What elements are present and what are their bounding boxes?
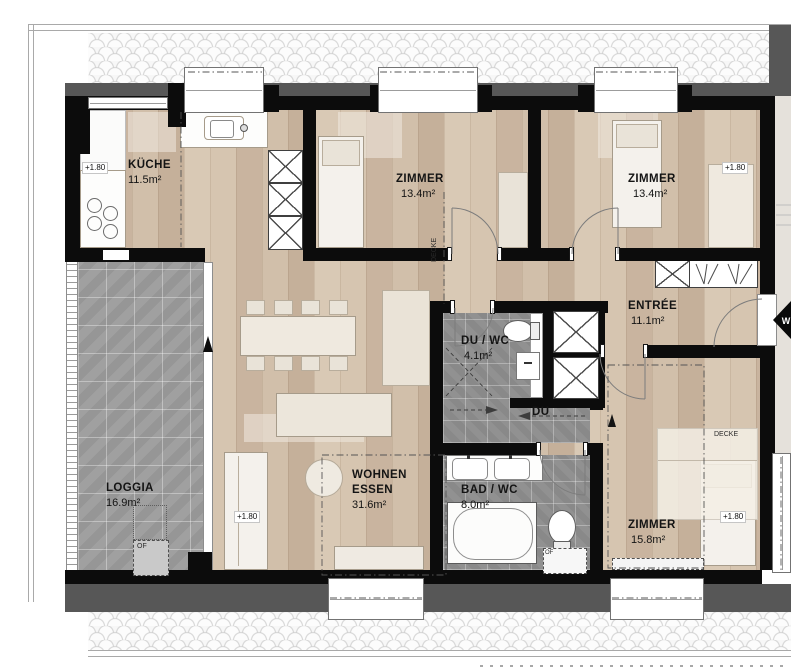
door-post (643, 344, 648, 358)
bath-sink (494, 458, 530, 480)
ref-line-top-2 (28, 30, 791, 31)
bed-pillow (322, 140, 360, 166)
cooktop-burner (87, 198, 102, 213)
room-label-kueche: KÜCHE 11.5m² (128, 158, 171, 187)
wall (645, 345, 762, 358)
sideboard (276, 393, 392, 437)
wall (500, 248, 572, 261)
dining-chair (274, 356, 293, 371)
cabinet (382, 290, 430, 386)
kitchen-faucet (240, 124, 248, 132)
kitchen-sink-basin (210, 120, 234, 138)
toilet (548, 510, 576, 544)
pass-through-opening (103, 250, 129, 260)
room-name: DU (532, 405, 549, 420)
door-post (615, 247, 620, 261)
wall-pier (476, 85, 492, 112)
room-area: 15.8m² (628, 533, 676, 547)
room-label-zimmer-top-right: ZIMMER 13.4m² (628, 172, 676, 201)
door-post (569, 247, 574, 261)
entree-wardrobe-shelf (655, 260, 690, 288)
room-area: 13.4m² (396, 187, 444, 201)
ventilation-shaft (553, 311, 599, 353)
window (184, 67, 264, 113)
room-area: 31.6m² (352, 498, 407, 512)
loggia-railing (66, 256, 78, 578)
window (328, 578, 424, 620)
kitchen-tall-cabinet (268, 183, 303, 216)
door-post (450, 300, 455, 314)
wall (303, 248, 450, 261)
cooktop-burner (87, 216, 102, 231)
door-post (447, 247, 452, 261)
bath-sink (452, 458, 488, 480)
tv-board (334, 546, 424, 570)
wardrobe (498, 172, 528, 248)
room-label-wohnen-essen: WOHNEN ESSEN 31.6m² (352, 468, 407, 512)
decke-label-vertical: DECKE (431, 228, 438, 262)
level-marker: +1.80 (720, 511, 746, 523)
level-marker: +1.80 (722, 162, 748, 174)
wall (443, 443, 540, 455)
room-name: ESSEN (352, 483, 407, 498)
floor-plan: W KÜCHE 11.5m² ZIMMER 13.4m² ZIMMER 13.4… (0, 0, 791, 670)
ref-line-bottom-1 (88, 650, 791, 651)
dining-chair (246, 356, 265, 371)
ref-line-bottom-2 (88, 656, 791, 657)
ventilation-shaft (553, 357, 599, 399)
bathtub-inner (453, 508, 533, 560)
wall-loggia-top (65, 248, 205, 262)
of-label: OF (137, 543, 147, 550)
room-name: ZIMMER (628, 172, 676, 187)
dining-chair (301, 356, 320, 371)
room-area: 13.4m² (628, 187, 676, 201)
wall (303, 96, 316, 261)
wall (65, 110, 80, 256)
room-name: KÜCHE (128, 158, 171, 173)
dining-chair (246, 300, 265, 315)
wall (590, 443, 603, 570)
room-name: DU / WC (461, 334, 509, 349)
du-wc-faucet (524, 362, 532, 364)
hanging-clothes-icon (691, 261, 757, 287)
wall-pier (262, 85, 279, 112)
du-label: DU (532, 405, 549, 420)
ref-line-left-1 (28, 24, 29, 602)
room-name: LOGGIA (106, 481, 154, 496)
dining-table (240, 316, 356, 356)
dining-chair (301, 300, 320, 315)
room-label-zimmer-bottom-right: ZIMMER 15.8m² (628, 518, 676, 547)
du-wc-sink (516, 352, 540, 380)
window-strip (88, 97, 168, 109)
ref-line-top-1 (28, 24, 791, 25)
room-name: ZIMMER (396, 172, 444, 187)
room-label-bad-wc: BAD / WC 8.0m² (461, 483, 518, 512)
room-label-entree: ENTRÉE 11.1m² (628, 299, 677, 328)
room-name: ZIMMER (628, 518, 676, 533)
room-name: BAD / WC (461, 483, 518, 498)
level-marker: +1.80 (234, 511, 260, 523)
window (772, 453, 791, 573)
door-post (497, 247, 502, 261)
loggia-sliding-door (203, 262, 213, 570)
level-marker: +1.80 (82, 162, 108, 174)
wall (430, 303, 443, 570)
wall-pier (578, 85, 594, 112)
room-area: 8.0m² (461, 498, 518, 512)
wardrobe-dashed (612, 558, 704, 570)
room-area: 11.1m² (628, 314, 677, 328)
toilet-tank (530, 322, 540, 340)
wall (618, 248, 762, 261)
kitchen-tall-cabinet (268, 150, 303, 183)
room-area: 16.9m² (106, 496, 154, 510)
dining-chair (329, 300, 348, 315)
room-name: ENTRÉE (628, 299, 677, 314)
cooktop-burner (103, 224, 118, 239)
dining-chair (274, 300, 293, 315)
cooktop-burner (103, 206, 118, 221)
window (610, 578, 704, 620)
lounge-chair (305, 459, 343, 497)
room-name: WOHNEN (352, 468, 407, 483)
room-label-zimmer-top-mid: ZIMMER 13.4m² (396, 172, 444, 201)
room-label-loggia: LOGGIA 16.9m² (106, 481, 154, 510)
door-post (490, 300, 495, 314)
ref-line-left-2 (33, 24, 34, 602)
room-area: 11.5m² (128, 173, 171, 187)
decke-label: DECKE (714, 431, 738, 438)
door-post (536, 442, 541, 456)
bed-pillow (616, 124, 658, 148)
ceiling-projection-line (658, 460, 757, 461)
kitchen-tall-cabinet (268, 216, 303, 250)
entrance-door-opening (757, 294, 777, 346)
wardrobe (708, 164, 754, 248)
window (594, 67, 678, 113)
wall (528, 96, 541, 254)
room-area: 4.1m² (461, 349, 509, 363)
door-post (583, 442, 588, 456)
ceiling-projection (657, 428, 758, 520)
of-label: OF (545, 550, 553, 556)
loggia-marking (133, 505, 167, 540)
door-post (600, 344, 605, 358)
room-label-du-wc: DU / WC 4.1m² (461, 334, 509, 363)
dining-chair (329, 356, 348, 371)
window (378, 67, 478, 113)
facade-band-top-right (769, 25, 791, 83)
